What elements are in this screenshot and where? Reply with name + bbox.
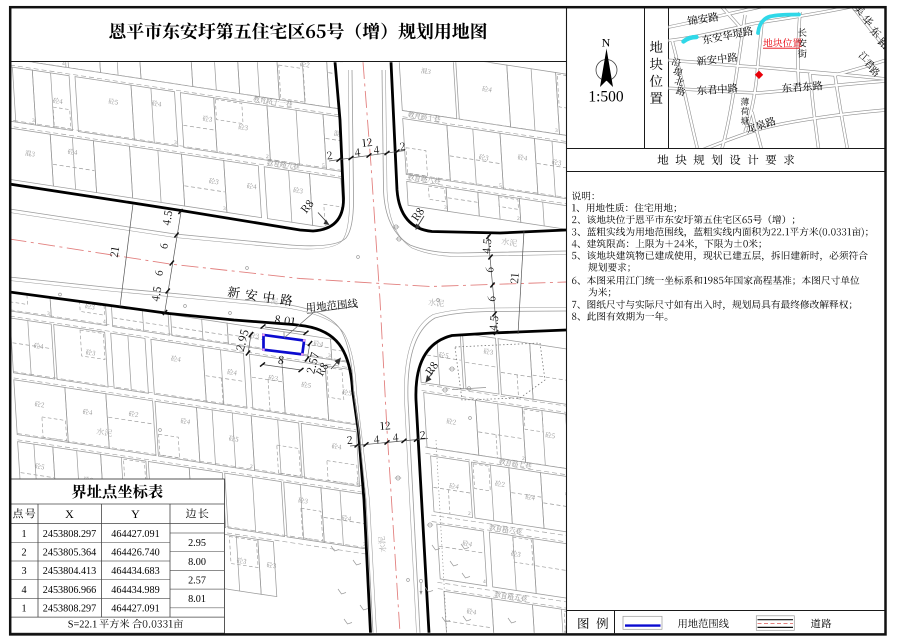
svg-text:4: 4 — [21, 585, 26, 596]
svg-text:2453806.966: 2453806.966 — [43, 585, 96, 596]
svg-text:4: 4 — [483, 579, 486, 585]
svg-text:1: 1 — [21, 529, 26, 540]
svg-text:2: 2 — [21, 548, 26, 559]
svg-text:8.00: 8.00 — [188, 557, 206, 568]
svg-text:464434.989: 464434.989 — [111, 585, 159, 596]
svg-text:2453808.297: 2453808.297 — [43, 529, 96, 540]
svg-text:N: N — [602, 36, 611, 50]
svg-text:2: 2 — [522, 456, 525, 462]
svg-text:S=22.1: S=22.1 — [68, 620, 98, 631]
svg-text:2: 2 — [517, 216, 520, 222]
svg-text:Y: Y — [131, 507, 140, 521]
svg-text:1:500: 1:500 — [588, 89, 624, 106]
svg-text:2: 2 — [468, 511, 471, 517]
svg-text:3: 3 — [555, 128, 558, 134]
svg-text:464427.091: 464427.091 — [111, 604, 159, 615]
svg-text:464434.683: 464434.683 — [111, 566, 159, 577]
svg-text:8.01: 8.01 — [188, 594, 206, 605]
svg-text:5: 5 — [322, 163, 325, 169]
svg-text:3: 3 — [444, 205, 447, 211]
svg-text:2453805.364: 2453805.364 — [43, 548, 96, 559]
svg-text:1: 1 — [21, 604, 26, 615]
svg-text:464426.740: 464426.740 — [111, 548, 159, 559]
svg-text:2453808.297: 2453808.297 — [43, 604, 96, 615]
svg-text:3: 3 — [21, 566, 26, 577]
svg-text:464427.091: 464427.091 — [111, 529, 159, 540]
svg-text:2.95: 2.95 — [188, 538, 206, 549]
svg-text:3: 3 — [223, 206, 226, 212]
svg-text:5: 5 — [499, 183, 502, 189]
svg-text:2453804.413: 2453804.413 — [43, 566, 96, 577]
svg-text:X: X — [65, 507, 74, 521]
svg-text:2.57: 2.57 — [188, 576, 206, 587]
